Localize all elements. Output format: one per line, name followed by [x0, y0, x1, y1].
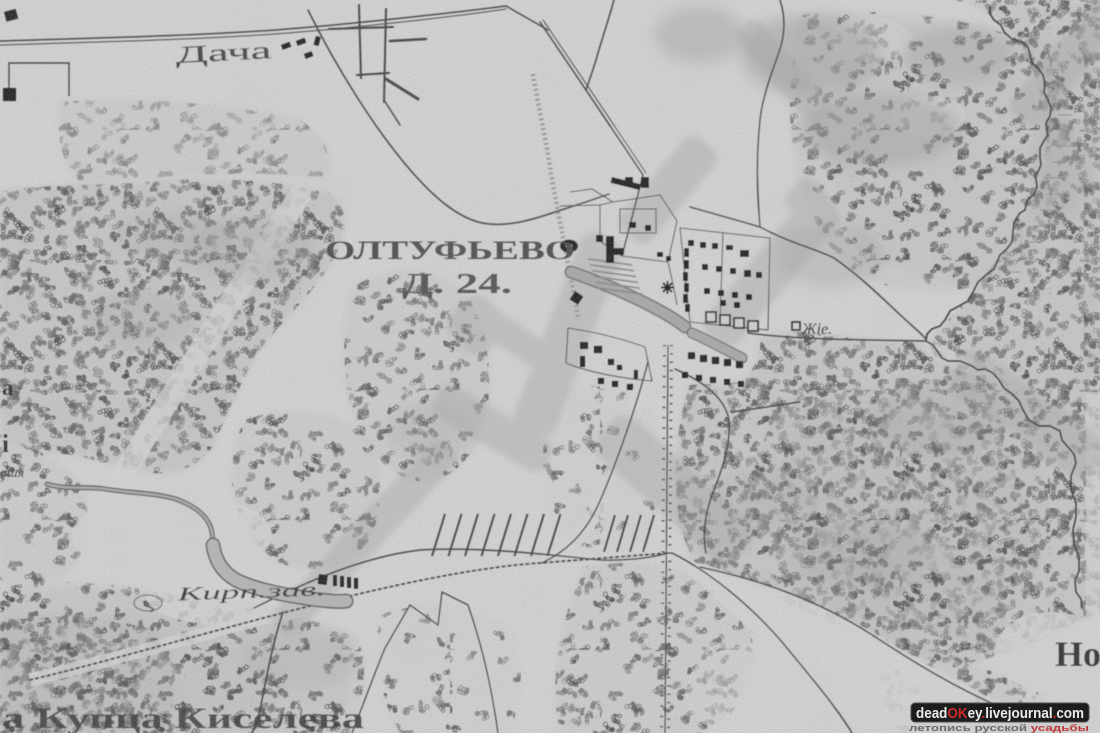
svg-text:летопись русской усадьбы: летопись русской усадьбы	[909, 723, 1089, 733]
svg-text:deadOKey.livejournal.com: deadOKey.livejournal.com	[916, 705, 1084, 722]
